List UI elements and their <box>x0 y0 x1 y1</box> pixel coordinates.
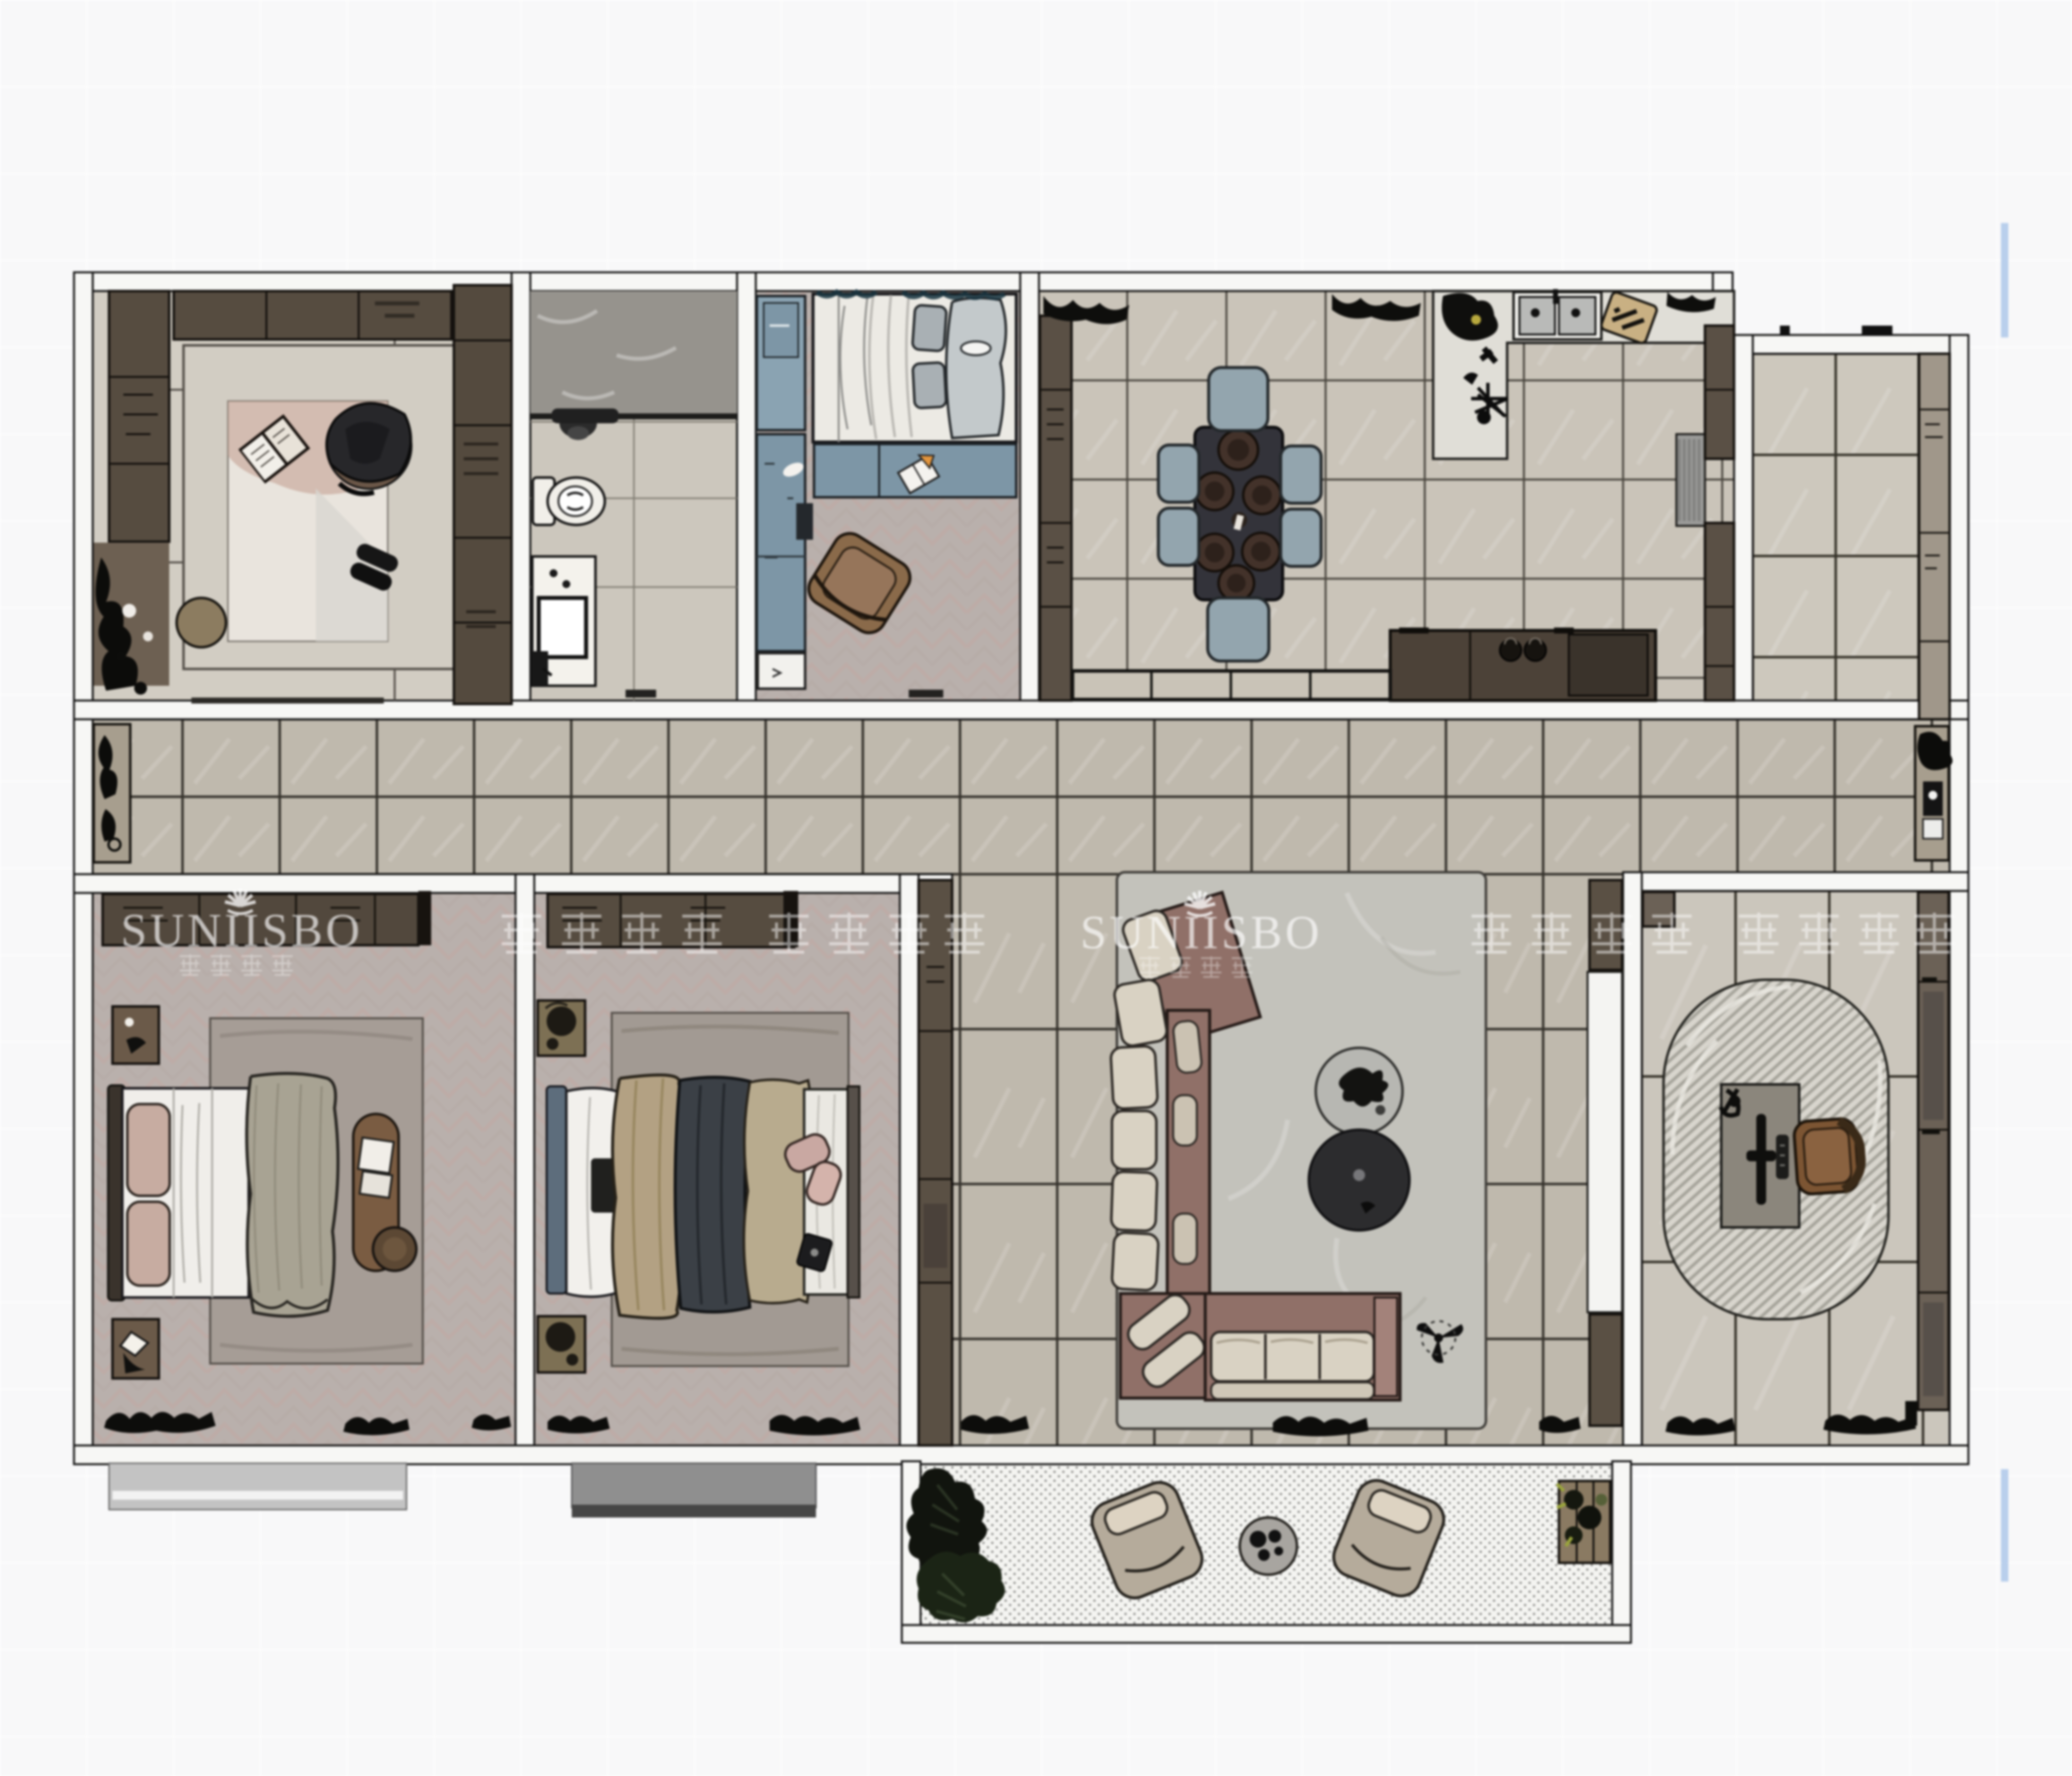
svg-text:SUNIISBO: SUNIISBO <box>1080 906 1323 959</box>
svg-text:SUNIISBO: SUNIISBO <box>121 904 363 957</box>
